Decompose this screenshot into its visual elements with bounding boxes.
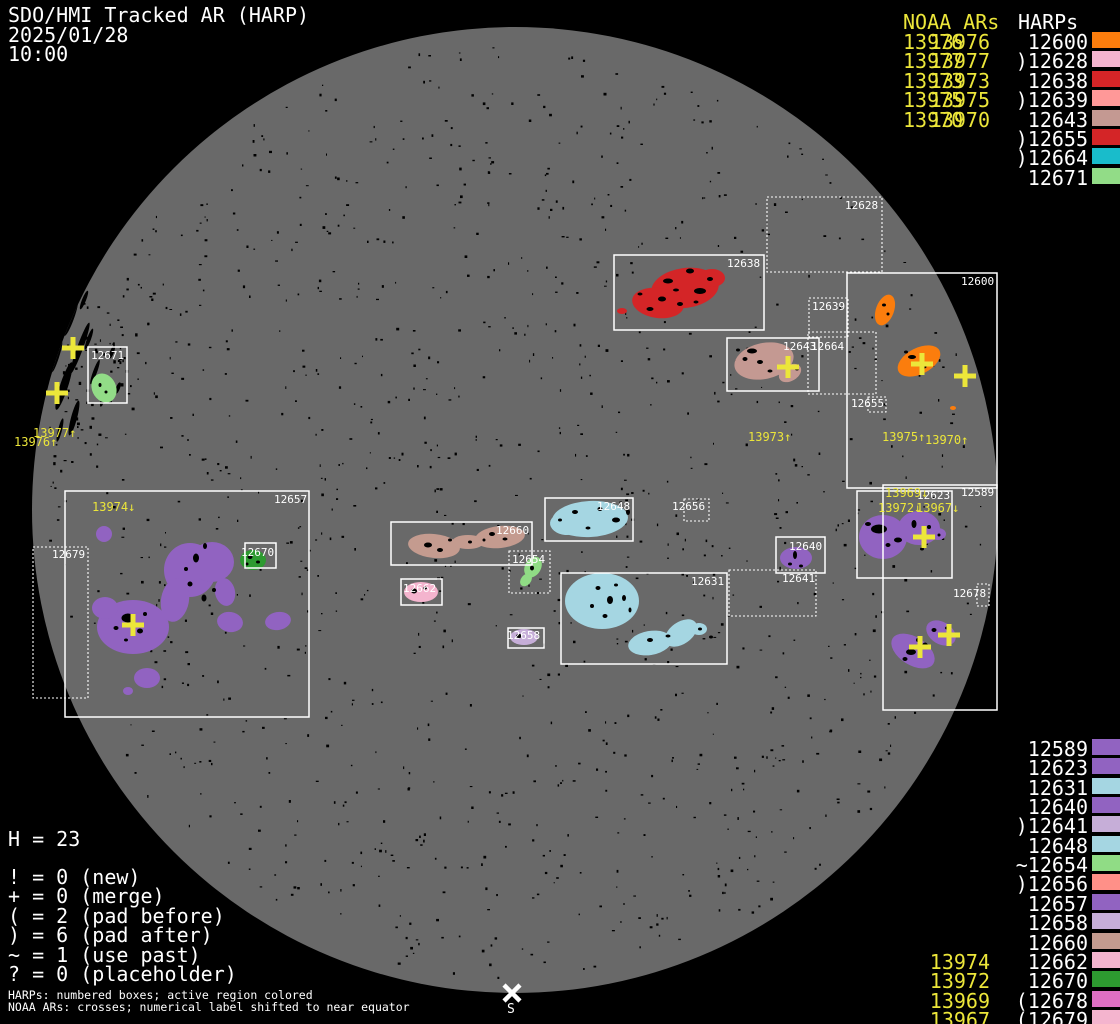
solar-disk [32, 27, 998, 993]
active-region-12640 [780, 547, 812, 569]
active-region-12658 [510, 629, 538, 645]
harp-tracking-image: SDO/HMI Tracked AR (HARP) 2025/01/28 10:… [0, 0, 1120, 1024]
active-region-12670 [240, 550, 266, 570]
active-region-12662 [404, 582, 438, 602]
solar-disk-canvas [0, 0, 1120, 1024]
